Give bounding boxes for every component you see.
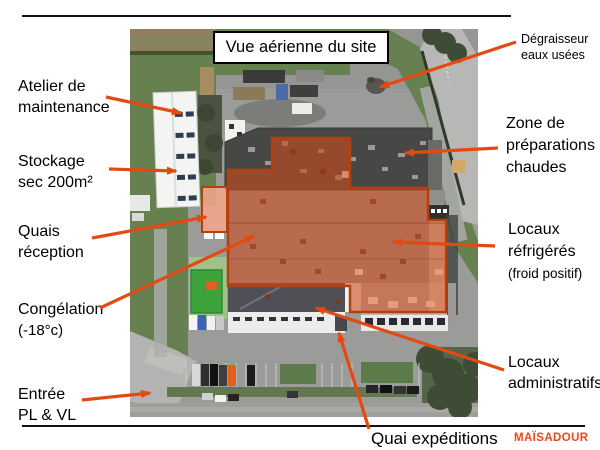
label-quais-reception: Quais réception — [18, 221, 84, 263]
atelier-maintenance-building — [153, 91, 200, 207]
page-title: Vue aérienne du site — [226, 38, 377, 57]
label-congelation: Congélation (-18°c) — [18, 299, 103, 341]
slide: Vue aérienne du site Atelier de maintena… — [0, 0, 600, 450]
loading-dock-right — [428, 205, 449, 219]
tan-shed — [452, 160, 465, 173]
top-rule — [22, 15, 511, 17]
label-degraisseur: Dégraisseur eaux usées — [521, 31, 588, 63]
label-zone-preparations: Zone de préparations chaudes — [506, 113, 595, 179]
quais-reception-overlay — [202, 187, 227, 232]
label-locaux-refrigeres: Locaux réfrigérés (froid positif) — [508, 219, 582, 285]
aerial-photo — [130, 29, 478, 417]
label-entree-pl-vl: Entrée PL & VL — [18, 384, 76, 426]
parking-area — [167, 362, 419, 402]
quai-expeditions-dock — [335, 316, 347, 331]
label-stockage-sec: Stockage sec 200m² — [18, 151, 93, 193]
title-box: Vue aérienne du site — [213, 31, 389, 64]
label-atelier-maintenance: Atelier de maintenance — [18, 76, 110, 118]
brand-logo: MAÏSADOUR — [514, 432, 589, 444]
annex-building — [130, 195, 150, 211]
bottom-rule — [22, 425, 585, 427]
label-quai-expeditions: Quai expéditions — [371, 428, 498, 449]
label-locaux-administratifs: Locaux administratifs — [508, 352, 600, 394]
